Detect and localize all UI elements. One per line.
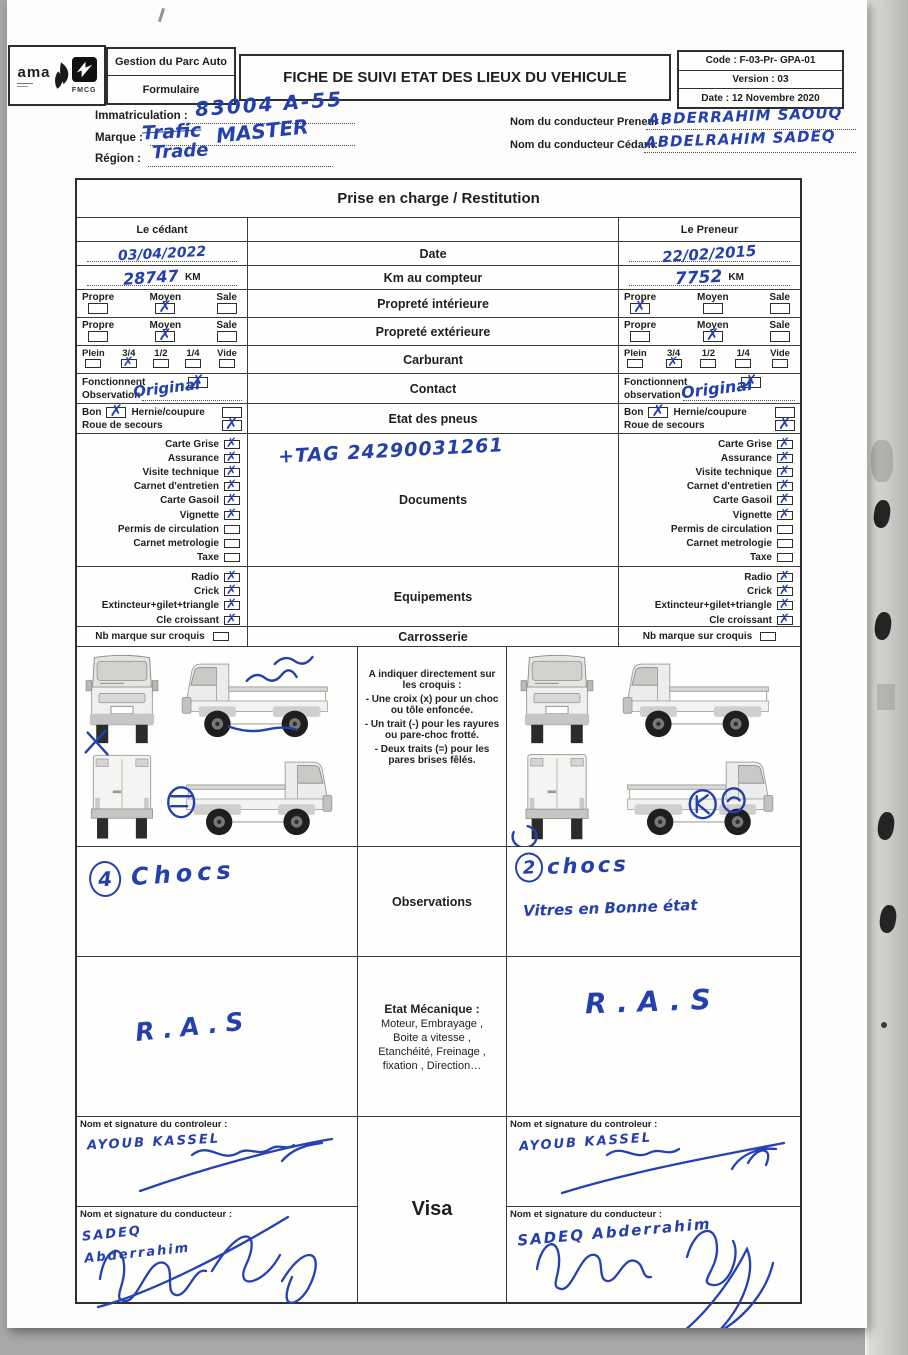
doc-label: Carte Gasoil [713,495,772,506]
croquis-instructions: A indiquer directement sur les croquis :… [358,647,506,766]
preneur-observations-value: 2 chocs [515,849,630,883]
option-label: 1/4 [186,348,199,359]
checkbox-pneus-bon[interactable] [106,407,126,418]
observation-label: Observation [82,390,140,401]
region-value: Trade [151,140,208,164]
logo-tagline-mark [17,86,28,87]
doc-label: Carte Grise [718,439,772,450]
inspection-table: Prise en charge / Restitution Le cédant … [75,178,802,1304]
doc-label: Carte Gasoil [160,495,219,506]
carburant-row: Plein 3/4 1/2 1/4 Vide Carburant Plein 3… [77,346,800,374]
checkbox-nb-marque[interactable] [213,632,229,641]
croquis-row: A indiquer directement sur les croquis :… [77,647,800,847]
checkbox-radio[interactable] [777,573,793,582]
checkbox-crick[interactable] [777,587,793,596]
chocs-count: 2 [515,852,544,883]
fmcg-logo-text: FMCG [72,87,97,94]
marque-final-value: MASTER [215,114,310,148]
km-label: Km au compteur [248,266,618,289]
checkbox-visite-technique[interactable] [777,468,793,477]
mecanique-line: Boite a vitesse , [362,1032,502,1044]
km-unit: KM [728,272,744,283]
doc-label: Visite technique [142,467,219,478]
equip-label: Cle croissant [709,615,772,626]
cedant-ras-value: R.A.S [134,1006,253,1047]
observations-row: 4 Chocs Observations 2 chocs Vitres en B… [77,847,800,957]
checkbox-1-4[interactable] [185,359,201,368]
checkbox-roue-secours[interactable] [222,420,242,431]
instruction-line: - Deux traits (=) pour les pares brises … [363,744,501,766]
hernie-label: Hernie/coupure [131,407,204,418]
option-label: Propre [82,320,114,331]
adjacent-page-edge [865,0,908,1355]
checkbox-cle-croissant[interactable] [777,616,793,625]
equip-label: Extincteur+gilet+triangle [655,600,772,611]
km-row: 28747KM Km au compteur 7752KM [77,266,800,290]
checkbox-sale[interactable] [770,331,790,342]
checkbox-nb-marque[interactable] [760,632,776,641]
etat-mecanique-title: Etat Mécanique : [362,1002,502,1016]
marque-value: Trafic MASTER [142,119,308,143]
observation-label: observation [624,390,681,401]
checkbox-vide[interactable] [219,359,235,368]
checkbox-plein[interactable] [85,359,101,368]
preneur-observations-extra: Vitres en Bonne état [523,896,698,920]
form-page: ama FMCG Gestion du Parc Auto Formulaire… [7,0,867,1328]
equip-label: Radio [744,572,772,583]
visa-label: Visa [358,1117,506,1302]
contact-row: Fonctionnent Observation Original Contac… [77,374,800,404]
preneur-label: Nom du conducteur Preneur : [510,116,665,128]
scan-speck [881,1022,887,1028]
checkbox-taxe[interactable] [224,553,240,562]
km-unit: KM [185,272,201,283]
cedant-date-value: 03/04/2022 [118,243,207,264]
etat-mecanique-row: R.A.S Etat Mécanique : Moteur, Embrayage… [77,957,800,1117]
underpage-wheel-mark [872,499,892,529]
option-label: 1/2 [702,348,715,359]
checkbox-radio[interactable] [224,573,240,582]
contact-label: Contact [248,374,618,403]
checkbox-permis-circulation[interactable] [777,525,793,534]
equipements-label: Equipements [248,567,618,626]
doc-label: Permis de circulation [671,524,772,535]
scan-speck [158,8,165,22]
fmcg-icon [72,57,97,82]
doc-label: Taxe [750,552,772,563]
checkbox-moyen[interactable] [703,331,723,342]
proprete-exterieure-row: Propre Moyen Sale Propreté extérieure Pr… [77,318,800,346]
option-label: Sale [769,292,790,303]
doc-label: Visite technique [695,467,772,478]
doc-label: Taxe [197,552,219,563]
option-label: Propre [624,320,656,331]
doc-label: Carnet d'entretien [687,481,772,492]
checkbox-carte-grise[interactable] [777,440,793,449]
conducteur-signature [92,1209,362,1324]
chocs-count: 4 [88,860,122,898]
checkbox-assurance[interactable] [224,454,240,463]
option-label: Vide [217,348,237,359]
leaf-icon [51,62,71,90]
equip-label: Extincteur+gilet+triangle [102,600,219,611]
equipements-row: Radio Crick Extincteur+gilet+triangle Cl… [77,567,800,627]
cedant-value: ABDELRAHIM SADEQ [645,127,836,152]
cedant-vehicle-sketch [77,647,357,846]
checkbox-3-4[interactable] [666,359,682,368]
pneus-row: BonHernie/coupure Roue de secours Etat d… [77,404,800,434]
doc-label: Assurance [721,453,772,464]
hernie-label: Hernie/coupure [673,407,746,418]
carrosserie-header-row: Nb marque sur croquis Carrosserie Nb mar… [77,627,800,647]
option-label: 1/4 [737,348,750,359]
checkbox-3-4[interactable] [121,359,137,368]
option-label: 1/2 [154,348,167,359]
damage-marks [507,647,800,846]
dept-title: Gestion du Parc Auto [108,49,234,76]
documents-row: Carte Grise Assurance Visite technique C… [77,434,800,567]
checkbox-propre[interactable] [630,303,650,314]
checkbox-sale[interactable] [217,303,237,314]
instruction-line: - Un trait (-) pour les rayures ou pare-… [363,719,501,741]
region-line [148,166,333,167]
checkbox-carte-gasoil[interactable] [777,496,793,505]
checkbox-pneus-bon[interactable] [648,407,668,418]
damage-marks [77,647,357,846]
checkbox-vide[interactable] [772,359,788,368]
option-label: Plein [82,348,105,359]
checkbox-1-2[interactable] [153,359,169,368]
proprete-interieure-label: Propreté intérieure [248,290,618,317]
carrosserie-label: Carrosserie [248,627,618,646]
fmcg-logo: FMCG [72,57,97,94]
fonctionnent-label: Fonctionnent [624,377,687,388]
option-label: Propre [82,292,114,303]
doc-label: Carnet d'entretien [134,481,219,492]
cedant-column-header: Le cédant [77,218,247,241]
visa-row: Nom et signature du controleur : AYOUB K… [77,1117,800,1302]
preneur-controleur-cell: Nom et signature du controleur : AYOUB K… [507,1117,800,1207]
checkbox-carte-grise[interactable] [224,440,240,449]
equip-label: Cle croissant [156,615,219,626]
cedant-label: Nom du conducteur Cédant: [510,139,658,151]
doc-label: Carnet metrologie [686,538,772,549]
proprete-interieure-row: Propre Moyen Sale Propreté intérieure Pr… [77,290,800,318]
checkbox-carnet-metrologie[interactable] [224,539,240,548]
instruction-line: A indiquer directement sur les croquis : [363,669,501,691]
marque-label: Marque : [95,132,143,144]
ama-logo: ama [17,64,64,87]
logo-box: ama FMCG [8,45,106,106]
cedant-observations-value: 4 Chocs [88,852,237,898]
checkbox-carte-gasoil[interactable] [224,496,240,505]
checkbox-carnet-entretien[interactable] [224,482,240,491]
checkbox-extincteur[interactable] [224,601,240,610]
checkbox-extincteur[interactable] [777,601,793,610]
cedant-conducteur-cell: Nom et signature du conducteur : SADEQ A… [77,1207,357,1301]
checkbox-sale[interactable] [217,331,237,342]
roue-label: Roue de secours [82,420,163,431]
checkbox-moyen[interactable] [155,331,175,342]
doc-label: Vignette [733,510,772,521]
preneur-km-value: 7752 [675,266,723,288]
date-label: Date [248,242,618,265]
mecanique-line: Moteur, Embrayage , [362,1018,502,1030]
doc-label: Permis de circulation [118,524,219,535]
table-title: Prise en charge / Restitution [77,180,800,218]
mecanique-line: Etanchéité, Freinage , [362,1046,502,1058]
checkbox-1-2[interactable] [700,359,716,368]
chocs-word: chocs [547,852,630,879]
conducteur-signature [527,1209,827,1328]
logo-tagline-mark [17,83,33,84]
proprete-exterieure-label: Propreté extérieure [248,318,618,345]
checkbox-sale[interactable] [770,303,790,314]
checkbox-visite-technique[interactable] [224,468,240,477]
controleur-signature [132,1125,342,1205]
equip-label: Radio [191,572,219,583]
checkbox-roue-secours[interactable] [775,420,795,431]
checkbox-moyen[interactable] [703,303,723,314]
doc-label: Assurance [168,453,219,464]
etat-mecanique-label: Etat Mécanique : Moteur, Embrayage , Boi… [358,957,506,1116]
preneur-column-header: Le Preneur [619,218,800,241]
chocs-word: Chocs [130,856,236,891]
date-row: 03/04/2022 Date 22/02/2015 [77,242,800,266]
underpage-wheel-mark [873,611,893,641]
doc-label: Vignette [180,510,219,521]
column-header-row: Le cédant Le Preneur [77,218,800,242]
cedant-controleur-cell: Nom et signature du controleur : AYOUB K… [77,1117,357,1207]
scan-smudge [877,684,895,710]
underpage-wheel-mark [878,904,898,934]
checkbox-propre[interactable] [630,331,650,342]
checkbox-assurance[interactable] [777,454,793,463]
checkbox-vignette[interactable] [224,511,240,520]
checkbox-permis-circulation[interactable] [224,525,240,534]
preneur-ras-value: R.A.S [584,983,721,1021]
mecanique-line: fixation , Direction… [362,1060,502,1072]
bon-label: Bon [82,407,101,418]
scan-smudge [871,440,893,482]
checkbox-carnet-metrologie[interactable] [777,539,793,548]
checkbox-propre[interactable] [88,331,108,342]
bon-label: Bon [624,407,643,418]
option-label: Sale [216,292,237,303]
checkbox-1-4[interactable] [735,359,751,368]
ama-logo-text: ama [17,64,50,81]
underpage-wheel-mark [876,811,896,841]
checkbox-moyen[interactable] [155,303,175,314]
doc-version: Version : 03 [679,71,842,90]
option-label: Vide [770,348,790,359]
preneur-conducteur-cell: Nom et signature du conducteur : SADEQ A… [507,1207,800,1301]
option-label: Plein [624,348,647,359]
checkbox-crick[interactable] [224,587,240,596]
preneur-date-value: 22/02/2015 [662,241,757,266]
region-label: Région : [95,153,141,165]
checkbox-cle-croissant[interactable] [224,616,240,625]
equip-label: Crick [194,586,219,597]
code-box: Code : F-03-Pr- GPA-01 Version : 03 Date… [677,50,844,109]
pneus-label: Etat des pneus [248,404,618,433]
equip-label: Crick [747,586,772,597]
option-label: Sale [769,320,790,331]
cedant-km-value: 28747 [123,266,180,289]
nb-marque-label: Nb marque sur croquis [643,631,752,642]
checkbox-vignette[interactable] [777,511,793,520]
option-label: Moyen [697,292,729,303]
carburant-label: Carburant [248,346,618,373]
option-label: Sale [216,320,237,331]
checkbox-taxe[interactable] [777,553,793,562]
nb-marque-label: Nb marque sur croquis [95,631,204,642]
cedant-line [644,152,856,153]
preneur-vehicle-sketch [507,647,800,846]
doc-code: Code : F-03-Pr- GPA-01 [679,52,842,71]
instruction-line: - Une croix (x) pour un choc ou tôle enf… [363,694,501,716]
controleur-signature [552,1127,792,1212]
observations-label: Observations [358,847,506,956]
roue-label: Roue de secours [624,420,705,431]
doc-label: Carnet metrologie [133,538,219,549]
doc-label: Carte Grise [165,439,219,450]
checkbox-carnet-entretien[interactable] [777,482,793,491]
checkbox-plein[interactable] [627,359,643,368]
checkbox-propre[interactable] [88,303,108,314]
